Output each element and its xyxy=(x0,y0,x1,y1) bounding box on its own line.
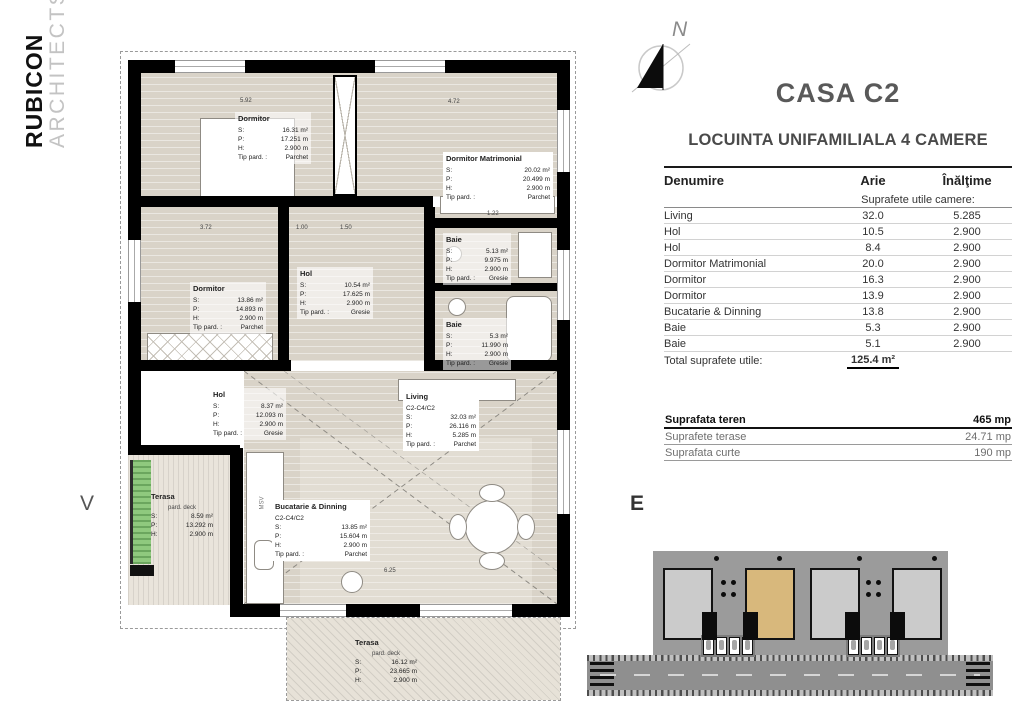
dimension-label: 3.72 xyxy=(200,225,212,231)
crosswalk-east xyxy=(966,662,990,689)
site-porch-1 xyxy=(702,612,717,640)
site-shrub-dot xyxy=(721,592,726,597)
table-row: Bucatarie & Dinning 13.8 2.900 xyxy=(664,304,1012,320)
wall-west-lower xyxy=(230,448,243,617)
site-tree-dot xyxy=(932,556,937,561)
door-south-2 xyxy=(420,604,512,617)
dimension-label: 6.25 xyxy=(384,568,396,574)
west-label: V xyxy=(80,492,94,516)
site-shrub-dot xyxy=(731,592,736,597)
firm-logo: RUBICON ARCHITECTS xyxy=(22,0,69,148)
bathtub-baie-2 xyxy=(506,296,552,362)
site-shrub-dot xyxy=(731,580,736,585)
land-areas: Suprafata teren 465 mp Suprafete terase … xyxy=(664,412,1012,461)
total-label: Total suprafete utile: xyxy=(664,352,824,371)
window-east-1 xyxy=(557,110,570,172)
site-tree-dot xyxy=(857,556,862,561)
column-header-inaltime: Înălţime xyxy=(922,167,1012,192)
table-section-label: Suprafete utile camere: xyxy=(824,192,1012,208)
table-row: Living 32.0 5.285 xyxy=(664,208,1012,224)
room-label-terasa-south: Terasa pard. deck S:16.12 m² P:23.665 m … xyxy=(352,636,420,687)
site-shrub-dot xyxy=(866,580,871,585)
land-row-terase: Suprafete terase 24.71 mp xyxy=(664,429,1012,445)
dimension-label: 4.72 xyxy=(448,99,460,105)
dimension-label: 5.92 xyxy=(240,98,252,104)
chair-west xyxy=(449,514,467,540)
wall-bedrooms-south xyxy=(141,196,433,207)
site-tree-dot xyxy=(714,556,719,561)
terrace-south-deck xyxy=(287,618,560,700)
window-east-2 xyxy=(557,250,570,320)
logo-architects-text: ARCHITECTS xyxy=(46,0,69,148)
road-center-line xyxy=(600,674,980,676)
shower-baie-1 xyxy=(518,232,552,278)
table-total-row: Total suprafete utile: 125.4 m² xyxy=(664,352,1012,371)
double-height-cross-lines xyxy=(244,371,557,604)
crosswalk-west xyxy=(590,662,614,689)
chair-south xyxy=(479,552,505,570)
dimension-label: 1.00 xyxy=(296,225,308,231)
room-label-hol-2: Hol S:8.37 m² P:12.093 m H:2.900 m Tip p… xyxy=(210,388,286,440)
wall-terrace-top xyxy=(128,445,240,455)
window-east-3 xyxy=(557,430,570,514)
door-south-1 xyxy=(280,604,346,617)
window-north-2 xyxy=(375,60,445,73)
site-porch-3 xyxy=(845,612,860,640)
site-shrub-dot xyxy=(866,592,871,597)
table-row: Hol 10.5 2.900 xyxy=(664,224,1012,240)
room-label-living: Living C2-C4/C2 S:32.03 m² P:26.116 m H:… xyxy=(403,390,479,451)
site-porch-4 xyxy=(890,612,905,640)
window-north-1 xyxy=(175,60,245,73)
stool-3 xyxy=(341,571,363,593)
architectural-sheet: { "branding": { "line1": "RUBICON", "lin… xyxy=(0,0,1018,720)
dimension-label: 1.22 xyxy=(487,211,499,217)
page-subtitle: LOCUINTA UNIFAMILIALA 4 CAMERE xyxy=(664,131,1012,150)
planter-wall xyxy=(130,565,154,576)
kitchen-appliance-label: MSV xyxy=(260,496,266,509)
room-areas-table: Denumire Arie Înălţime Suprafete utile c… xyxy=(664,166,1012,370)
info-panel: CASA C2 LOCUINTA UNIFAMILIALA 4 CAMERE D… xyxy=(664,78,1012,461)
room-label-hol-1: Hol S:10.54 m² P:17.625 m H:2.900 m Tip … xyxy=(297,267,373,319)
land-row-curte: Suprafata curte 190 mp xyxy=(664,445,1012,461)
wall-dormitor-hol xyxy=(278,207,289,367)
table-row: Baie 5.3 2.900 xyxy=(664,320,1012,336)
table-row: Baie 5.1 2.900 xyxy=(664,336,1012,352)
chair-east xyxy=(517,514,535,540)
chair-north xyxy=(479,484,505,502)
table-row: Hol 8.4 2.900 xyxy=(664,240,1012,256)
room-label-baie-2: Baie S:5.3 m² P:11.990 m H:2.900 m Tip p… xyxy=(443,318,511,370)
site-shrub-dot xyxy=(876,592,881,597)
east-label: E xyxy=(630,492,644,516)
kitchen-sink xyxy=(254,540,274,570)
room-label-terasa-west: Terasa pard. deck S:8.59 m² P:13.292 m H… xyxy=(148,490,216,541)
table-row: Dormitor 16.3 2.900 xyxy=(664,272,1012,288)
total-value: 125.4 m² xyxy=(847,354,899,369)
dining-table xyxy=(465,500,519,554)
room-label-dormitor-2: Dormitor S:13.86 m² P:14.893 m H:2.900 m… xyxy=(190,282,266,334)
site-shrub-dot xyxy=(876,580,881,585)
site-tree-dot xyxy=(777,556,782,561)
room-label-baie-1: Baie S:5.13 m² P:9.975 m H:2.900 m Tip p… xyxy=(443,233,511,285)
north-label: N xyxy=(672,18,687,42)
toilet-baie-2 xyxy=(448,298,466,316)
table-row: Dormitor Matrimonial 20.0 2.900 xyxy=(664,256,1012,272)
room-label-dormitor-matrimonial: Dormitor Matrimonial S:20.02 m² P:20.499… xyxy=(443,152,553,204)
wardrobe-closet xyxy=(333,75,357,196)
wall-hol-baie xyxy=(424,207,435,367)
page-title: CASA C2 xyxy=(664,78,1012,109)
table-row: Dormitor 13.9 2.900 xyxy=(664,288,1012,304)
room-label-dormitor-1: Dormitor S:16.31 m² P:17.251 m H:2.900 m… xyxy=(235,112,311,164)
site-shrub-dot xyxy=(721,580,726,585)
land-row-teren: Suprafata teren 465 mp xyxy=(664,412,1012,429)
site-porch-2 xyxy=(743,612,758,640)
wall-mid-west xyxy=(141,360,291,371)
logo-rubicon-text: RUBICON xyxy=(22,0,46,148)
column-header-arie: Arie xyxy=(824,167,922,192)
room-label-bucatarie: Bucatarie & Dinning C2-C4/C2 S:13.85 m² … xyxy=(272,500,370,561)
wall-matrimonial-south xyxy=(430,218,557,228)
column-header-denumire: Denumire xyxy=(664,167,824,192)
window-west-1 xyxy=(128,240,141,302)
dimension-label: 1.50 xyxy=(340,225,352,231)
